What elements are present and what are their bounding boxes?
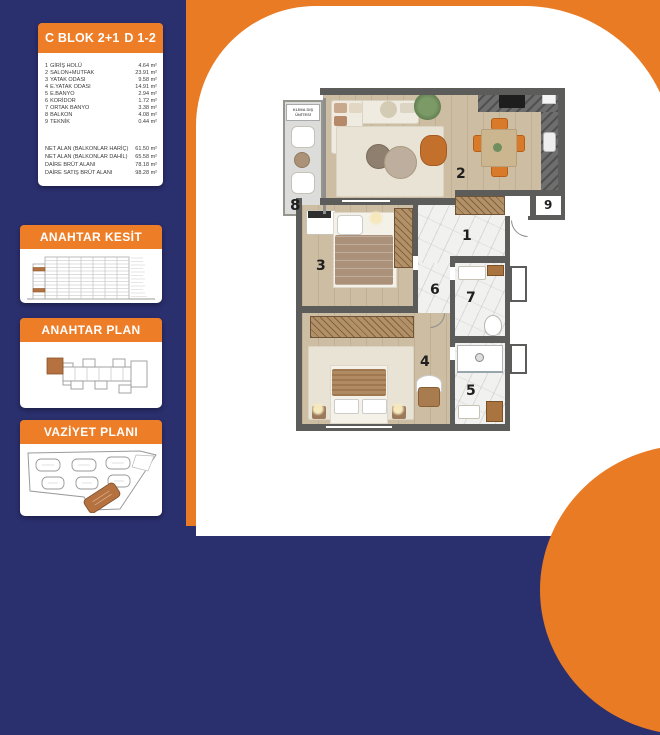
room-no: 3 [45,77,48,84]
room-area: 14.91 m² [135,84,157,91]
pillow [334,399,359,414]
sofa-pouf [380,101,397,118]
key-plan-drawing [23,345,159,403]
wall [320,88,565,95]
shower-head [475,353,484,362]
room-label-5: 5 [466,383,476,399]
room-area: 9.58 m² [138,77,157,84]
kitchen-counter-right [541,112,558,192]
room-area: 23.91 m² [135,70,157,77]
wall [296,198,302,431]
wall [450,256,510,263]
entry-door-arc [511,220,528,237]
room-area: 2.94 m² [138,91,157,98]
balcony-divider-wall [323,98,326,214]
room-name: TEKNİK [50,119,138,126]
room-no: 1 [45,63,48,70]
area-summary: NET ALAN (BALKONLAR HARİÇ)61.50 m² NET A… [38,126,163,177]
ac-outdoor-unit-label: KLİMA DIŞ ÜNİTESİ [286,104,320,121]
tv [308,211,331,218]
wall [558,88,565,198]
room-label-8: 8 [290,196,300,214]
bathroom-cabinet [486,401,503,422]
entry-porch [505,196,530,216]
room-row: 6KORİDOR1.72 m² [45,98,157,105]
key-section-title: ANAHTAR KESİT [20,225,162,249]
highlighted-floor-lower [33,289,45,293]
site-plan-title: VAZİYET PLANI [20,420,162,444]
room-row: 9TEKNİK0.44 m² [45,119,157,126]
site-plan-card: VAZİYET PLANI [20,420,162,516]
table-centerpiece [493,143,502,152]
exterior-niche [510,344,527,374]
room-row: 7ORTAK BANYO3.38 m² [45,105,157,112]
window [326,426,392,428]
sofa-pillow [400,103,415,113]
sofa-pillow [334,103,347,113]
bed-blanket [335,235,393,285]
summary-row: DAİRE BRÜT ALANI78.18 m² [45,161,157,169]
room-row: 4E.YATAK ODASI14.91 m² [45,84,157,91]
room-area: 3.38 m² [138,105,157,112]
summary-label: DAİRE BRÜT ALANI [45,161,95,169]
room-area: 4.64 m² [138,63,157,70]
bathroom-cabinet [487,265,504,276]
room-no: 8 [45,112,48,119]
room-name: E.YATAK ODASI [50,84,135,91]
door-opening [450,267,455,280]
room-label-3: 3 [316,258,326,274]
lamp-glow [311,402,325,416]
summary-value: 98.28 m² [135,169,157,177]
block-title: C BLOK 2+1 [45,31,120,45]
room-row: 1GİRİŞ HOLÜ4.64 m² [45,63,157,70]
sofa-pillow [349,103,362,113]
room-no: 6 [45,98,48,105]
lamp-glow [368,210,384,226]
room-label-4: 4 [420,354,430,370]
summary-value: 65.58 m² [135,153,157,161]
kitchen-sink [543,132,556,152]
balcony-table [294,152,310,168]
summary-row: NET ALAN (BALKONLAR HARİÇ)61.50 m² [45,145,157,153]
room-name: ORTAK BANYO [50,105,138,112]
bed-blanket [332,369,386,396]
wall [528,216,565,220]
summary-row: NET ALAN (BALKONLAR DAHİL)65.58 m² [45,153,157,161]
room-label-9: 9 [544,198,552,212]
orange-armchair [420,135,447,166]
summary-value: 61.50 m² [135,145,157,153]
unit-info-card: C BLOK 2+1 D 1-2 1GİRİŞ HOLÜ4.64 m² 2SAL… [38,23,163,186]
room-name: E.BANYO [50,91,138,98]
summary-value: 78.18 m² [135,161,157,169]
bathroom-sink [458,405,480,419]
summary-label: NET ALAN (BALKONLAR DAHİL) [45,153,127,161]
room-name: GİRİŞ HOLÜ [50,63,138,70]
unit-card-header: C BLOK 2+1 D 1-2 [38,23,163,53]
floor-plan: KLİMA DIŞ ÜNİTESİ [282,88,574,434]
room-no: 5 [45,91,48,98]
key-plan-title: ANAHTAR PLAN [20,318,162,342]
room-area: 1.72 m² [138,98,157,105]
sofa-pillow [334,116,347,126]
room-no: 4 [45,84,48,91]
key-section-card: ANAHTAR KESİT [20,225,162,303]
armchair-seat [418,387,440,407]
room-row: 8BALKON4.08 m² [45,112,157,119]
summary-label: DAİRE SATIŞ BRÜT ALANI [45,169,112,177]
room-label-1: 1 [462,228,472,244]
room-area: 0.44 m² [138,119,157,126]
room-row: 5E.BANYO2.94 m² [45,91,157,98]
room-label-7: 7 [466,290,476,306]
room-area: 4.08 m² [138,112,157,119]
room-row: 3YATAK ODASI9.58 m² [45,77,157,84]
room-name: SALON+MUTFAK [50,70,135,77]
door-opening [450,347,455,360]
building-section-drawing [23,252,159,302]
highlighted-floor-upper [33,268,45,272]
room-label-2: 2 [456,166,466,182]
toilet [484,315,502,336]
room-label-6: 6 [430,282,440,298]
site-plan-drawing [20,447,162,513]
highlighted-unit [47,358,63,374]
room-no: 7 [45,105,48,112]
room-no: 2 [45,70,48,77]
wall [296,306,418,313]
plant [414,93,441,120]
wall [450,336,510,343]
room-no: 9 [45,119,48,126]
wardrobe [394,208,413,268]
balcony-chair [291,126,315,148]
entry-closet [455,196,505,215]
room-row: 2SALON+MUTFAK23.91 m² [45,70,157,77]
balcony-chair [291,172,315,194]
window [342,200,390,202]
exterior-niche [510,266,527,302]
room-list: 1GİRİŞ HOLÜ4.64 m² 2SALON+MUTFAK23.91 m²… [38,53,163,126]
bathroom-sink [458,266,486,280]
door-opening [413,256,418,270]
unit-title: D 1-2 [124,31,156,45]
coffee-table-large [384,146,417,179]
pillow [362,399,387,414]
lamp-glow [391,402,405,416]
pillow [337,215,363,235]
wardrobe [310,316,414,338]
summary-label: NET ALAN (BALKONLAR HARİÇ) [45,145,128,153]
summary-row: DAİRE SATIŞ BRÜT ALANI98.28 m² [45,169,157,177]
room-name: KORİDOR [50,98,138,105]
room-name: YATAK ODASI [50,77,138,84]
key-plan-card: ANAHTAR PLAN [20,318,162,408]
room-name: BALKON [50,112,138,119]
shower-glass [457,371,503,373]
